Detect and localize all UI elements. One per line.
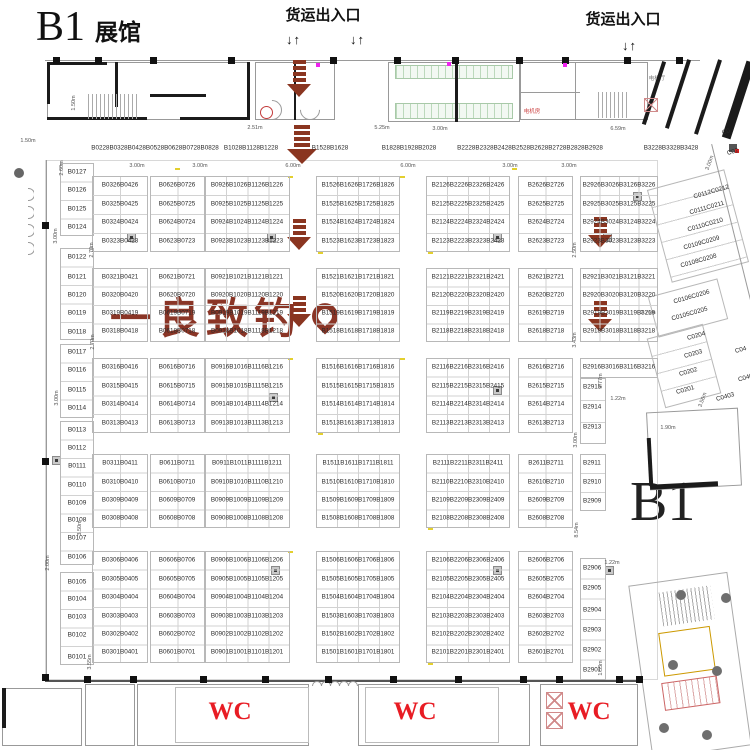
booth-label: B0902B1002B1102B1202 <box>211 631 283 638</box>
booth-label: B1501B1601B1701B1801 <box>322 649 395 656</box>
booth-label: B1524B1624B1724B1824 <box>322 219 395 226</box>
scallop-arc <box>28 206 34 219</box>
left-booth-label: B0116 <box>68 367 86 374</box>
wall-column-square <box>676 57 683 64</box>
booth-label: B2103B2203B2303B2403 <box>432 613 505 620</box>
booth-label: B2906 <box>583 565 601 572</box>
dimension-label: 2.00m <box>45 555 51 570</box>
dimension-label: 3.00m <box>573 432 579 447</box>
booth-label: B0625B0725 <box>159 201 195 208</box>
slanted-wall <box>665 59 691 129</box>
booth-label: B2109B2209B2309B2409 <box>432 497 505 504</box>
grid-column-marker <box>605 566 614 575</box>
booth-label: B0318B0418 <box>102 328 138 335</box>
booth-label: B0913B1013B1113B1213 <box>211 420 283 427</box>
booth-label: B1521B1621B1721B1821 <box>322 274 395 281</box>
booth-label: B1514B1614B1714B1814 <box>322 401 395 408</box>
freight-arrow-icon <box>287 60 311 97</box>
wall-column-square <box>516 57 523 64</box>
toilet-stalls <box>395 65 513 79</box>
dimension-label: 3.00m <box>561 163 576 169</box>
booth-label: B0310B0410 <box>102 479 138 486</box>
header-booth-group-label: B1828B1928B2028 <box>382 145 437 152</box>
wc-room-outline <box>365 687 499 743</box>
booth-label: B0314B0414 <box>102 401 138 408</box>
booth-label: B2118B2218B2318B2418 <box>432 328 504 335</box>
left-booth-label: B0111 <box>68 463 86 470</box>
wall-column-square <box>53 57 60 64</box>
wall-seg <box>2 688 6 728</box>
dimension-label: 3.50m <box>77 520 83 535</box>
booth-label: B2624B2724 <box>528 219 564 226</box>
survey-dash <box>318 433 323 435</box>
dimension-label: 3.00m <box>502 163 517 169</box>
page-title: B1 展馆 <box>36 6 141 48</box>
booth-label: B0620B0720 <box>159 292 195 299</box>
header-booth-group-label: B1528B1628 <box>312 145 348 152</box>
booth-label: B0315B0415 <box>102 383 138 390</box>
survey-dash <box>428 252 433 254</box>
booth-label: B2110B2210B2310B2410 <box>432 479 504 486</box>
booth-label: B2604B2704 <box>528 594 564 601</box>
booth-label: B2925B3025B3125B3225 <box>583 201 656 208</box>
left-booth-label: B0105 <box>68 579 87 586</box>
freight-arrow-dash <box>293 308 306 312</box>
booth-label: B1515B1615B1715B1815 <box>322 383 395 390</box>
booth-label: B1509B1609B1709B1809 <box>322 497 395 504</box>
page-title-zh: 展馆 <box>95 16 141 48</box>
booth-label: B2125B2225B2325B2425 <box>432 201 505 208</box>
booth-label: B0919B1019B1119B1219 <box>211 310 283 317</box>
booth-label: B0313B0413 <box>102 420 138 427</box>
wall-column-square <box>150 57 157 64</box>
booth-label: B1520B1620B1720B1820 <box>322 292 395 299</box>
freight-entrance-label-right: 货运出入口 <box>585 8 660 29</box>
booth-label: B0306B0406 <box>102 557 138 564</box>
dimension-label: 1.50m <box>20 138 35 144</box>
left-booth-block <box>60 421 94 565</box>
booth-label: B2601B2701 <box>528 649 564 656</box>
entrance-arrows-icon: ↓↑ <box>286 32 301 47</box>
booth-label: B2914 <box>583 404 601 411</box>
utility-square-magenta <box>447 62 451 66</box>
freight-arrow-head <box>287 314 311 327</box>
booth-label: B0326B0426 <box>102 182 138 189</box>
left-booth-label: B0119 <box>68 310 86 317</box>
booth-label: B1503B1603B1703B1803 <box>322 613 395 620</box>
booth-label: B1506B1606B1706B1806 <box>322 557 395 564</box>
booth-label: B2610B2710 <box>528 479 564 486</box>
wall-column-square <box>262 676 269 683</box>
freight-arrow-dash <box>293 302 306 306</box>
booth-label: B2920B3020B3120B3220 <box>583 292 656 299</box>
booth-label: B2615B2715 <box>528 383 564 390</box>
freight-arrow-dash <box>294 131 310 135</box>
booth-label: B2120B2220B2320B2420 <box>432 292 505 299</box>
wall-column-square <box>390 676 397 683</box>
booth-label: B1505B1605B1705B1805 <box>322 576 395 583</box>
freight-arrow-dash <box>293 78 306 82</box>
booth-label: B0916B1016B1116B1216 <box>211 364 283 371</box>
header-booth-group-label: B0228B0328B0428B0528B0628B0728B0828 <box>91 145 218 152</box>
wall-column-square <box>520 676 527 683</box>
wall-column-square <box>394 57 401 64</box>
dimension-label: 1.53m <box>598 660 604 675</box>
booth-label: B2924B3024B3124B3224 <box>583 219 656 226</box>
left-booth-label: B0118 <box>68 329 86 336</box>
elevator-shaft-icon <box>546 692 563 709</box>
booth-label: B0316B0416 <box>102 364 138 371</box>
building-outline <box>47 62 250 120</box>
booth-label: B0601B0701 <box>159 649 195 656</box>
booth-label: B2911 <box>583 460 601 467</box>
booth-label: B2625B2725 <box>528 201 564 208</box>
site-dot <box>14 168 24 178</box>
booth-label: B2918B3018B3118B3218 <box>583 328 655 335</box>
wall-seg <box>455 62 458 122</box>
booth-label: B0323B0423 <box>102 238 138 245</box>
booth-label: B2121B2221B2321B2421 <box>432 274 505 281</box>
dimension-label: 3.43m <box>572 332 578 347</box>
dimension-label: 1.22m <box>604 560 619 566</box>
booth-label: B2119B2219B2319B2419 <box>432 310 504 317</box>
side-room-outline <box>646 408 742 491</box>
booth-label: B1508B1608B1708B1808 <box>322 515 395 522</box>
booth-label: B0901B1001B1101B1201 <box>211 649 283 656</box>
left-booth-label: B0110 <box>68 482 86 489</box>
dimension-label: 2.76m <box>640 310 655 316</box>
left-booth-label: B0115 <box>68 387 86 394</box>
toilet-stalls <box>395 103 513 119</box>
left-booth-label: B0102 <box>68 632 87 639</box>
booth-block <box>518 551 573 663</box>
booth-label: B2613B2713 <box>528 420 564 427</box>
booth-label: B0602B0702 <box>159 631 195 638</box>
booth-label: B0320B0420 <box>102 292 138 299</box>
booth-label: B0904B1004B1104B1204 <box>211 594 283 601</box>
lower-right-building <box>628 572 750 750</box>
top-wall-line <box>45 60 700 61</box>
booth-label: B2101B2201B2301B2401 <box>432 649 505 656</box>
booth-label: B0308B0408 <box>102 515 138 522</box>
left-booth-label: B0106 <box>68 554 87 561</box>
left-booth-label: B0127 <box>68 169 87 176</box>
survey-dash <box>400 358 405 360</box>
left-booth-label: B0125 <box>68 206 87 213</box>
scallop-arc <box>28 224 34 237</box>
booth-label: B2626B2726 <box>528 182 564 189</box>
wall-column-square <box>616 676 623 683</box>
booth-label: B0624B0724 <box>159 219 195 226</box>
booth-label: B0606B0706 <box>159 557 195 564</box>
booth-label: B0609B0709 <box>159 497 195 504</box>
page-title-b1: B1 <box>36 6 85 48</box>
booth-label: B0608B0708 <box>159 515 195 522</box>
booth-label: B0915B1015B1115B1215 <box>211 383 283 390</box>
header-booth-group-label: B2228B2328B2428B2528B2628B2728B2828B2928 <box>457 145 603 152</box>
room-outline <box>661 675 720 711</box>
dimension-label: 3.55m <box>87 654 93 669</box>
freight-arrow-dash <box>293 231 306 235</box>
booth-label: B0319B0419 <box>102 310 138 317</box>
wall-seg <box>47 62 50 104</box>
dimension-label: 6.00m <box>285 163 300 169</box>
entrance-arrows-icon: ↓↑ <box>622 38 637 53</box>
booth-label: B2616B2716 <box>528 364 564 371</box>
booth-label: B0618B0718 <box>159 328 195 335</box>
booth-label: B0321B0421 <box>102 274 138 281</box>
elevator-shaft-icon <box>644 98 658 112</box>
column-dot <box>676 590 686 600</box>
entrance-arrows-icon: ↓↑ <box>350 32 365 47</box>
booth-label: B0603B0703 <box>159 613 195 620</box>
left-booth-label: B0114 <box>68 405 86 412</box>
booth-label: B2115B2215B2315B2415 <box>432 383 504 390</box>
booth-label: B2923B3023B3123B3223 <box>583 238 656 245</box>
freight-arrow-dash <box>293 225 306 229</box>
booth-label: B2111B2211B2311B2411 <box>433 460 504 467</box>
booth-label: B0604B0704 <box>159 594 195 601</box>
dimension-label: 2.51m <box>247 125 262 131</box>
wall-column-square <box>130 676 137 683</box>
room-line <box>575 62 576 120</box>
slanted-wall <box>694 59 722 134</box>
booth-label: B1511B1611B1711B1811 <box>323 460 394 467</box>
booth-label: B0920B1020B1120B1220 <box>211 292 283 299</box>
left-booth-label: B0124 <box>68 224 87 231</box>
header-booth-group-label: B1028B1128B1228 <box>224 145 278 152</box>
freight-arrow-dash <box>294 137 310 141</box>
wall-column-square <box>624 57 631 64</box>
booth-label: B0304B0404 <box>102 594 138 601</box>
booth-label: B0325B0425 <box>102 201 138 208</box>
booth-label: B2620B2720 <box>528 292 564 299</box>
booth-label: B2902 <box>583 647 601 654</box>
booth-label: B2106B2206B2306B2406 <box>432 557 505 564</box>
left-booth-label: B0120 <box>68 292 87 299</box>
survey-dash <box>175 168 180 170</box>
wall-column-square <box>42 674 49 681</box>
wall-column-square <box>636 676 643 683</box>
booth-label: B2606B2706 <box>528 557 564 564</box>
booth-block <box>426 551 510 663</box>
dimension-label: 3.00m <box>54 390 60 405</box>
booth-label: B0914B1014B1114B1214 <box>211 401 283 408</box>
booth-block <box>316 551 400 663</box>
floor-plan-b1: B1 展馆 货运出入口 货运出入口 ↓↑ ↓↑ ↓↑ B1 WC WC WC 电… <box>0 0 750 750</box>
cad-symbol-icon <box>260 106 273 119</box>
wall-column-square <box>455 676 462 683</box>
booth-label: B0621B0721 <box>159 274 195 281</box>
dimension-label: 3.00m <box>192 163 207 169</box>
freight-arrow-dash <box>294 143 310 147</box>
booth-label: B0619B0719 <box>159 310 195 317</box>
survey-dash <box>400 176 405 178</box>
booth-label: B0626B0726 <box>159 182 195 189</box>
booth-label: B2926B3026B3126B3226 <box>583 182 656 189</box>
c-booth-label-fragment: C040 <box>737 373 750 384</box>
left-wall-line <box>46 160 47 680</box>
booth-label: B0925B1025B1125B1225 <box>211 201 283 208</box>
booth-label: B1516B1616B1716B1816 <box>322 364 395 371</box>
booth-label: B1510B1610B1710B1810 <box>322 479 395 486</box>
booth-label: B0613B0713 <box>159 420 195 427</box>
booth-label: B1504B1604B1704B1804 <box>322 594 395 601</box>
elevator-shaft-icon <box>546 712 563 729</box>
booth-label: B0605B0705 <box>159 576 195 583</box>
booth-label: B2621B2721 <box>528 274 564 281</box>
left-booth-label: B0113 <box>68 427 86 434</box>
booth-label: B0615B0715 <box>159 383 195 390</box>
wall-column-square <box>200 676 207 683</box>
dimension-label: 2.60m <box>59 160 65 175</box>
c-booth-label-fragment: C04 <box>734 345 747 355</box>
left-booth-label: B0109 <box>68 500 87 507</box>
wall-column-square <box>325 676 332 683</box>
column-dot <box>702 730 712 740</box>
booth-label: B2916B3016B3116B3216 <box>583 364 655 371</box>
wall-column-square <box>556 676 563 683</box>
dimension-label: 2.50m <box>572 242 578 257</box>
wc-room-outline <box>175 687 309 743</box>
booth-label: B2904 <box>583 607 601 614</box>
freight-arrow-head <box>287 237 311 250</box>
column-dot <box>712 666 722 676</box>
booth-label: B2126B2226B2326B2426 <box>432 182 505 189</box>
left-booth-label: B0122 <box>68 254 87 261</box>
booth-label: B0924B1024B1124B1224 <box>211 219 283 226</box>
wall-seg <box>180 117 250 120</box>
booth-label: B0309B0409 <box>102 497 138 504</box>
booth-label: B1513B1613B1713B1813 <box>322 420 395 427</box>
c-booth-label-fragment: C02 <box>726 147 739 157</box>
room-outline <box>658 626 716 677</box>
booth-label: B2102B2202B2302B2402 <box>432 631 505 638</box>
header-booth-group-label: B3228B3328B3428 <box>644 145 699 152</box>
booth-label: B1519B1619B1719B1819 <box>322 310 395 317</box>
booth-label: B2611B2711 <box>528 460 563 467</box>
booth-label: B2603B2703 <box>528 613 564 620</box>
utility-square-magenta <box>563 63 567 67</box>
booth-label: B0906B1006B1106B1206 <box>211 557 283 564</box>
booth-label: B2605B2705 <box>528 576 564 583</box>
dimension-label: 3.00m <box>705 155 716 171</box>
column-dot <box>668 660 678 670</box>
dimension-label: 2.70m <box>89 242 95 257</box>
dimension-label: 1.50m <box>71 95 77 110</box>
stairs-hatch <box>88 94 138 119</box>
column-dot <box>721 593 731 603</box>
dimension-label: 5.25m <box>374 125 389 131</box>
booth-label: B0911B1011B1111B1211 <box>212 460 282 467</box>
freight-entrance-label-center: 货运出入口 <box>285 4 360 25</box>
booth-label: B0324B0424 <box>102 219 138 226</box>
booth-label: B2105B2205B2305B2405 <box>432 576 505 583</box>
freight-arrow-dash <box>293 60 306 64</box>
booth-label: B0903B1003B1103B1203 <box>211 613 283 620</box>
left-booth-label: B0101 <box>68 654 87 661</box>
dimension-label: 8.54m <box>574 522 580 537</box>
dimension-label: 6.00m <box>400 163 415 169</box>
booth-label: B0616B0716 <box>159 364 195 371</box>
dimension-label: 6.59m <box>610 126 625 132</box>
left-booth-label: B0117 <box>68 349 86 356</box>
column-dot <box>659 723 669 733</box>
scallop-arc <box>28 242 34 255</box>
booth-label: B0921B1021B1121B1221 <box>211 274 283 281</box>
wall-seg <box>150 94 206 97</box>
freight-arrow-dash <box>293 296 306 300</box>
freight-arrow-dash <box>293 72 306 76</box>
booth-label: B0611B0711 <box>159 460 194 467</box>
wall-column-square <box>42 222 49 229</box>
dimension-label: 3.00m <box>432 126 447 132</box>
booth-label: B2618B2718 <box>528 328 564 335</box>
survey-dash <box>428 528 433 530</box>
left-booth-label: B0126 <box>68 187 87 194</box>
freight-arrow-head <box>287 84 311 97</box>
booth-label: B0303B0403 <box>102 613 138 620</box>
booth-label: B2108B2208B2308B2408 <box>432 515 505 522</box>
booth-label: B2623B2723 <box>528 238 564 245</box>
booth-label: B2921B3021B3121B3221 <box>583 274 656 281</box>
wall-column-square <box>228 57 235 64</box>
left-booth-label: B0112 <box>68 445 86 452</box>
freight-arrow-dash <box>294 125 310 129</box>
dimension-label: 1.22m <box>610 396 625 402</box>
dimension-label: 3.00m <box>53 228 59 243</box>
wall-column-square <box>84 676 91 683</box>
booth-label: B2609B2709 <box>528 497 564 504</box>
booth-label: B0610B0710 <box>159 479 195 486</box>
booth-label: B0926B1026B1126B1226 <box>211 182 283 189</box>
freight-arrow-icon <box>287 296 311 327</box>
booth-label: B0302B0402 <box>102 631 138 638</box>
building-outline <box>520 62 648 120</box>
booth-label: B0614B0714 <box>159 401 195 408</box>
booth-label: B2608B2708 <box>528 515 564 522</box>
wall-column-square <box>330 57 337 64</box>
booth-label: B1526B1626B1726B1826 <box>322 182 395 189</box>
dimension-label: 2.70m <box>90 334 96 349</box>
booth-label: B1523B1623B1723B1823 <box>322 238 395 245</box>
booth-label: B2910 <box>583 479 601 486</box>
left-booth-label: B0103 <box>68 614 87 621</box>
booth-label: B0301B0401 <box>102 649 138 656</box>
wall-column-square <box>452 57 459 64</box>
building-outline <box>85 684 135 746</box>
left-booth-label: B0104 <box>68 596 87 603</box>
left-booth-label: B0121 <box>68 274 87 281</box>
booth-label: B0909B1009B1109B1209 <box>211 497 283 504</box>
corridor-scallops <box>28 188 34 262</box>
survey-dash <box>318 252 323 254</box>
scallop-arc <box>348 681 358 686</box>
dimension-label: 1.90m <box>660 425 675 431</box>
booth-block <box>205 551 290 663</box>
booth-label: B0311B0411 <box>102 460 137 467</box>
booth-label: B0305B0405 <box>102 576 138 583</box>
utility-square-magenta <box>316 63 320 67</box>
dimension-label: 3.00m <box>129 163 144 169</box>
room-line <box>520 92 580 93</box>
booth-label: B2619B2719 <box>528 310 564 317</box>
booth-block <box>150 551 205 663</box>
booth-label: B2104B2204B2304B2404 <box>432 594 505 601</box>
survey-dash <box>428 663 433 665</box>
booth-label: B0910B1010B1110B1210 <box>211 479 283 486</box>
booth-label: B2113B2213B2313B2413 <box>432 420 504 427</box>
